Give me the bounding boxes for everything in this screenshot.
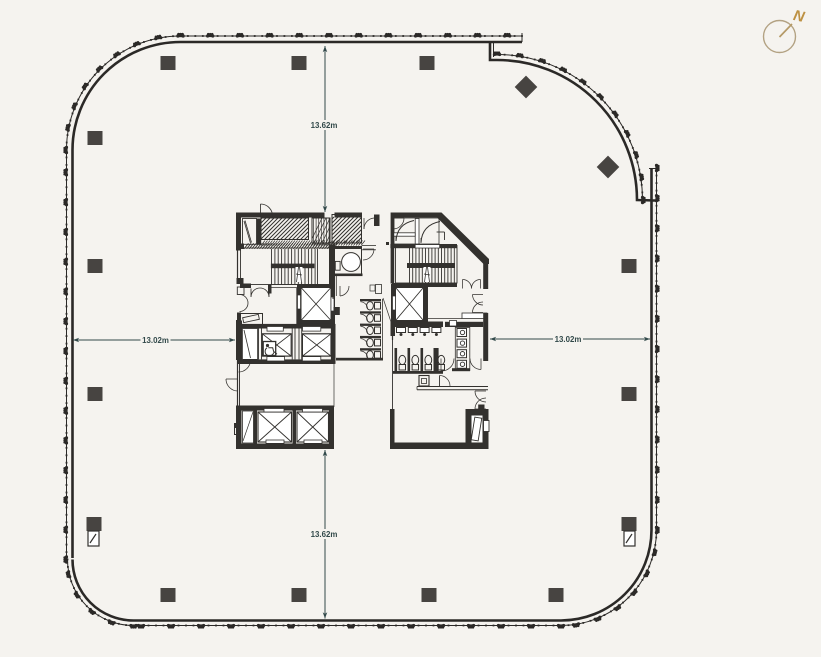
svg-text:13.02m: 13.02m bbox=[142, 336, 169, 345]
svg-text:13.62m: 13.62m bbox=[311, 121, 338, 130]
svg-text:13.62m: 13.62m bbox=[311, 530, 338, 539]
svg-text:13.02m: 13.02m bbox=[555, 335, 582, 344]
